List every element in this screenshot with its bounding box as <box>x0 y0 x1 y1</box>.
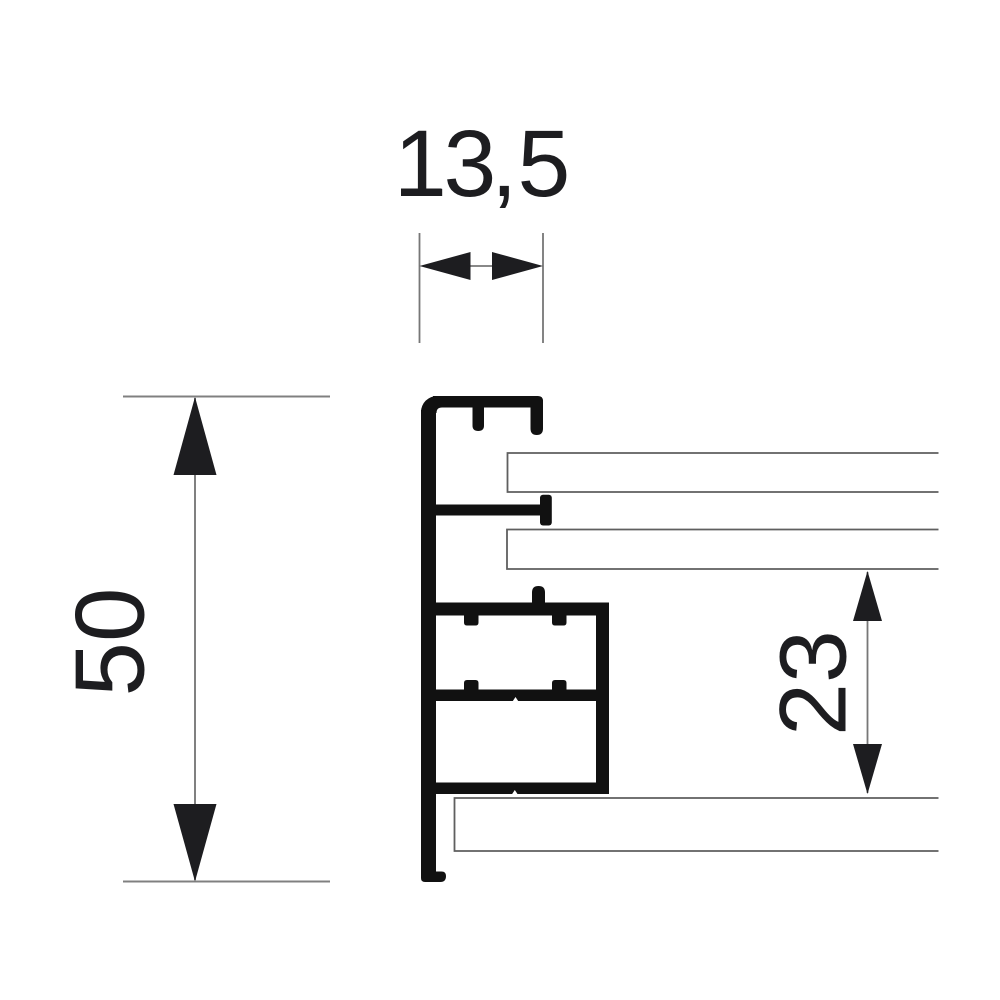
svg-text:13,5: 13,5 <box>394 111 570 217</box>
svg-text:23: 23 <box>761 630 867 736</box>
svg-text:50: 50 <box>55 587 165 696</box>
